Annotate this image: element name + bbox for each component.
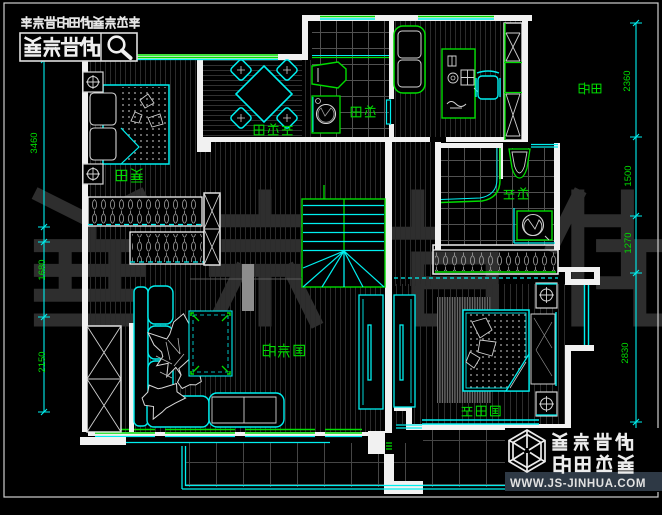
svg-text:2150: 2150 <box>37 351 48 372</box>
svg-text:1680: 1680 <box>37 259 48 280</box>
svg-text:2360: 2360 <box>622 70 633 91</box>
svg-text:WWW.JS-JINHUA.COM: WWW.JS-JINHUA.COM <box>510 478 646 490</box>
svg-text:1500: 1500 <box>623 165 634 186</box>
svg-text:3460: 3460 <box>29 132 40 153</box>
svg-text:1270: 1270 <box>623 232 634 253</box>
svg-text:2830: 2830 <box>620 342 631 363</box>
